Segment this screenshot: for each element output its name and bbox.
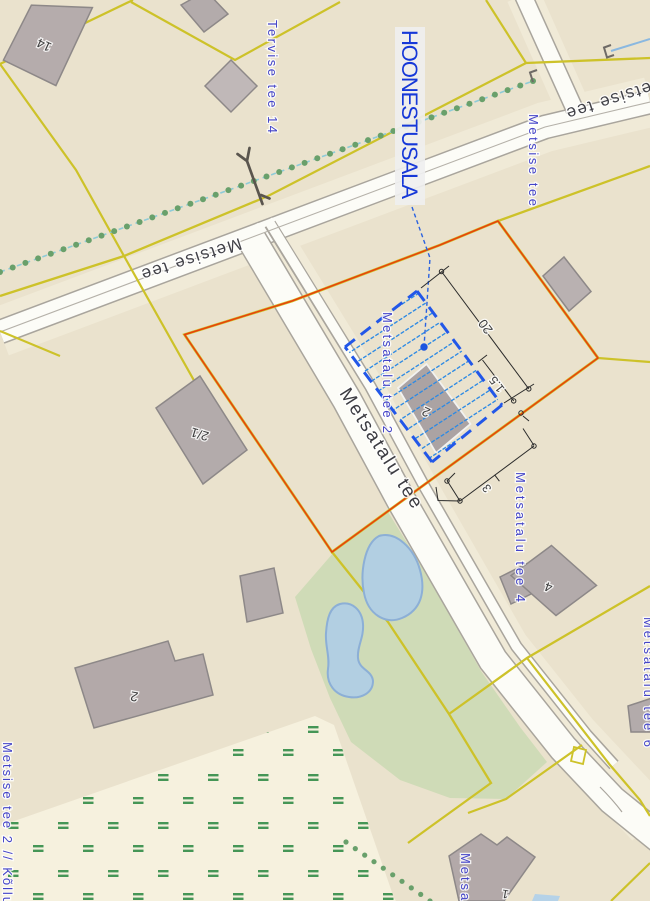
svg-text:Metsise tee: Metsise tee [526, 114, 541, 206]
svg-text:Metsise tee 2 // Kõllu: Metsise tee 2 // Kõllu [0, 742, 15, 901]
svg-text:HOONESTUSALA: HOONESTUSALA [397, 30, 422, 199]
svg-text:Metsatalu: Metsatalu [458, 853, 473, 901]
